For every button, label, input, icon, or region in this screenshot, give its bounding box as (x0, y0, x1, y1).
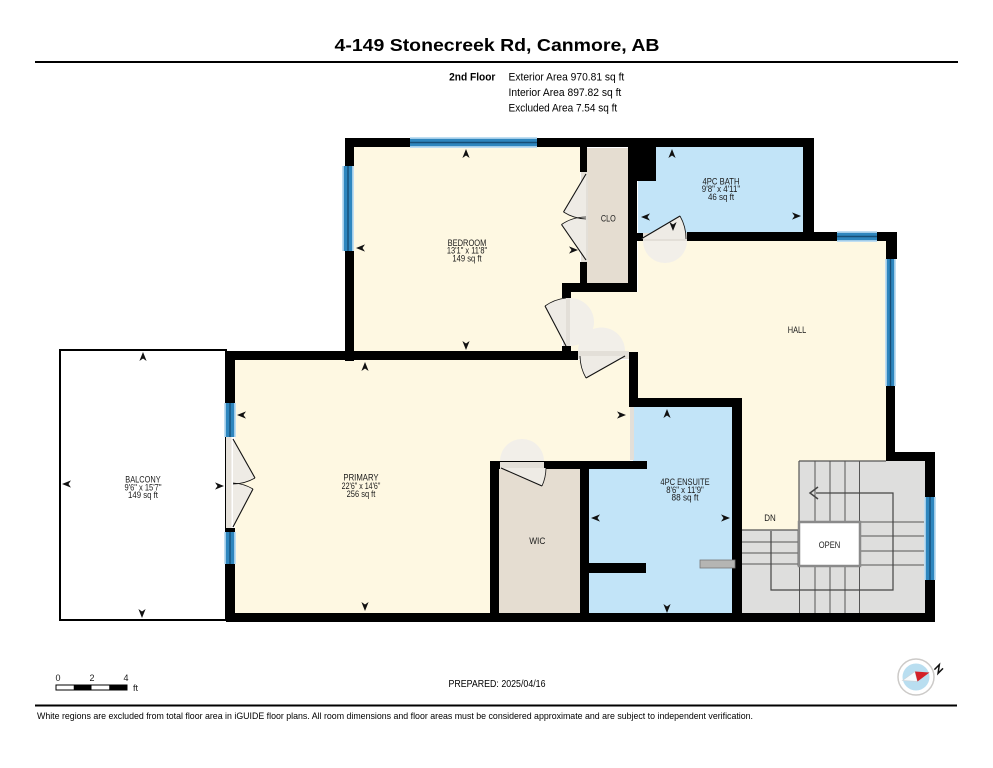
svg-text:2: 2 (89, 673, 94, 683)
svg-text:4: 4 (123, 673, 128, 683)
svg-text:White regions are excluded fro: White regions are excluded from total fl… (37, 711, 753, 721)
svg-text:88 sq ft: 88 sq ft (672, 492, 699, 502)
svg-text:Exterior Area 970.81 sq ft: Exterior Area 970.81 sq ft (509, 72, 625, 84)
svg-text:OPEN: OPEN (819, 540, 841, 550)
svg-text:CLO: CLO (601, 213, 616, 223)
svg-text:Interior Area 897.82 sq ft: Interior Area 897.82 sq ft (509, 87, 622, 99)
svg-text:WIC: WIC (529, 536, 546, 546)
svg-text:Excluded Area 7.54 sq ft: Excluded Area 7.54 sq ft (509, 102, 618, 114)
svg-text:4-149 Stonecreek Rd, Canmore,: 4-149 Stonecreek Rd, Canmore, AB (335, 35, 660, 55)
svg-text:2nd Floor: 2nd Floor (449, 72, 496, 84)
svg-text:HALL: HALL (788, 325, 807, 335)
svg-text:46 sq ft: 46 sq ft (708, 192, 735, 202)
svg-text:149 sq ft: 149 sq ft (128, 490, 158, 500)
svg-text:149 sq ft: 149 sq ft (452, 253, 482, 263)
svg-text:PREPARED: 2025/04/16: PREPARED: 2025/04/16 (449, 678, 546, 690)
svg-text:256 sq ft: 256 sq ft (347, 489, 376, 499)
svg-text:0: 0 (55, 673, 60, 683)
svg-text:DN: DN (764, 513, 776, 523)
svg-text:ft: ft (133, 683, 139, 693)
